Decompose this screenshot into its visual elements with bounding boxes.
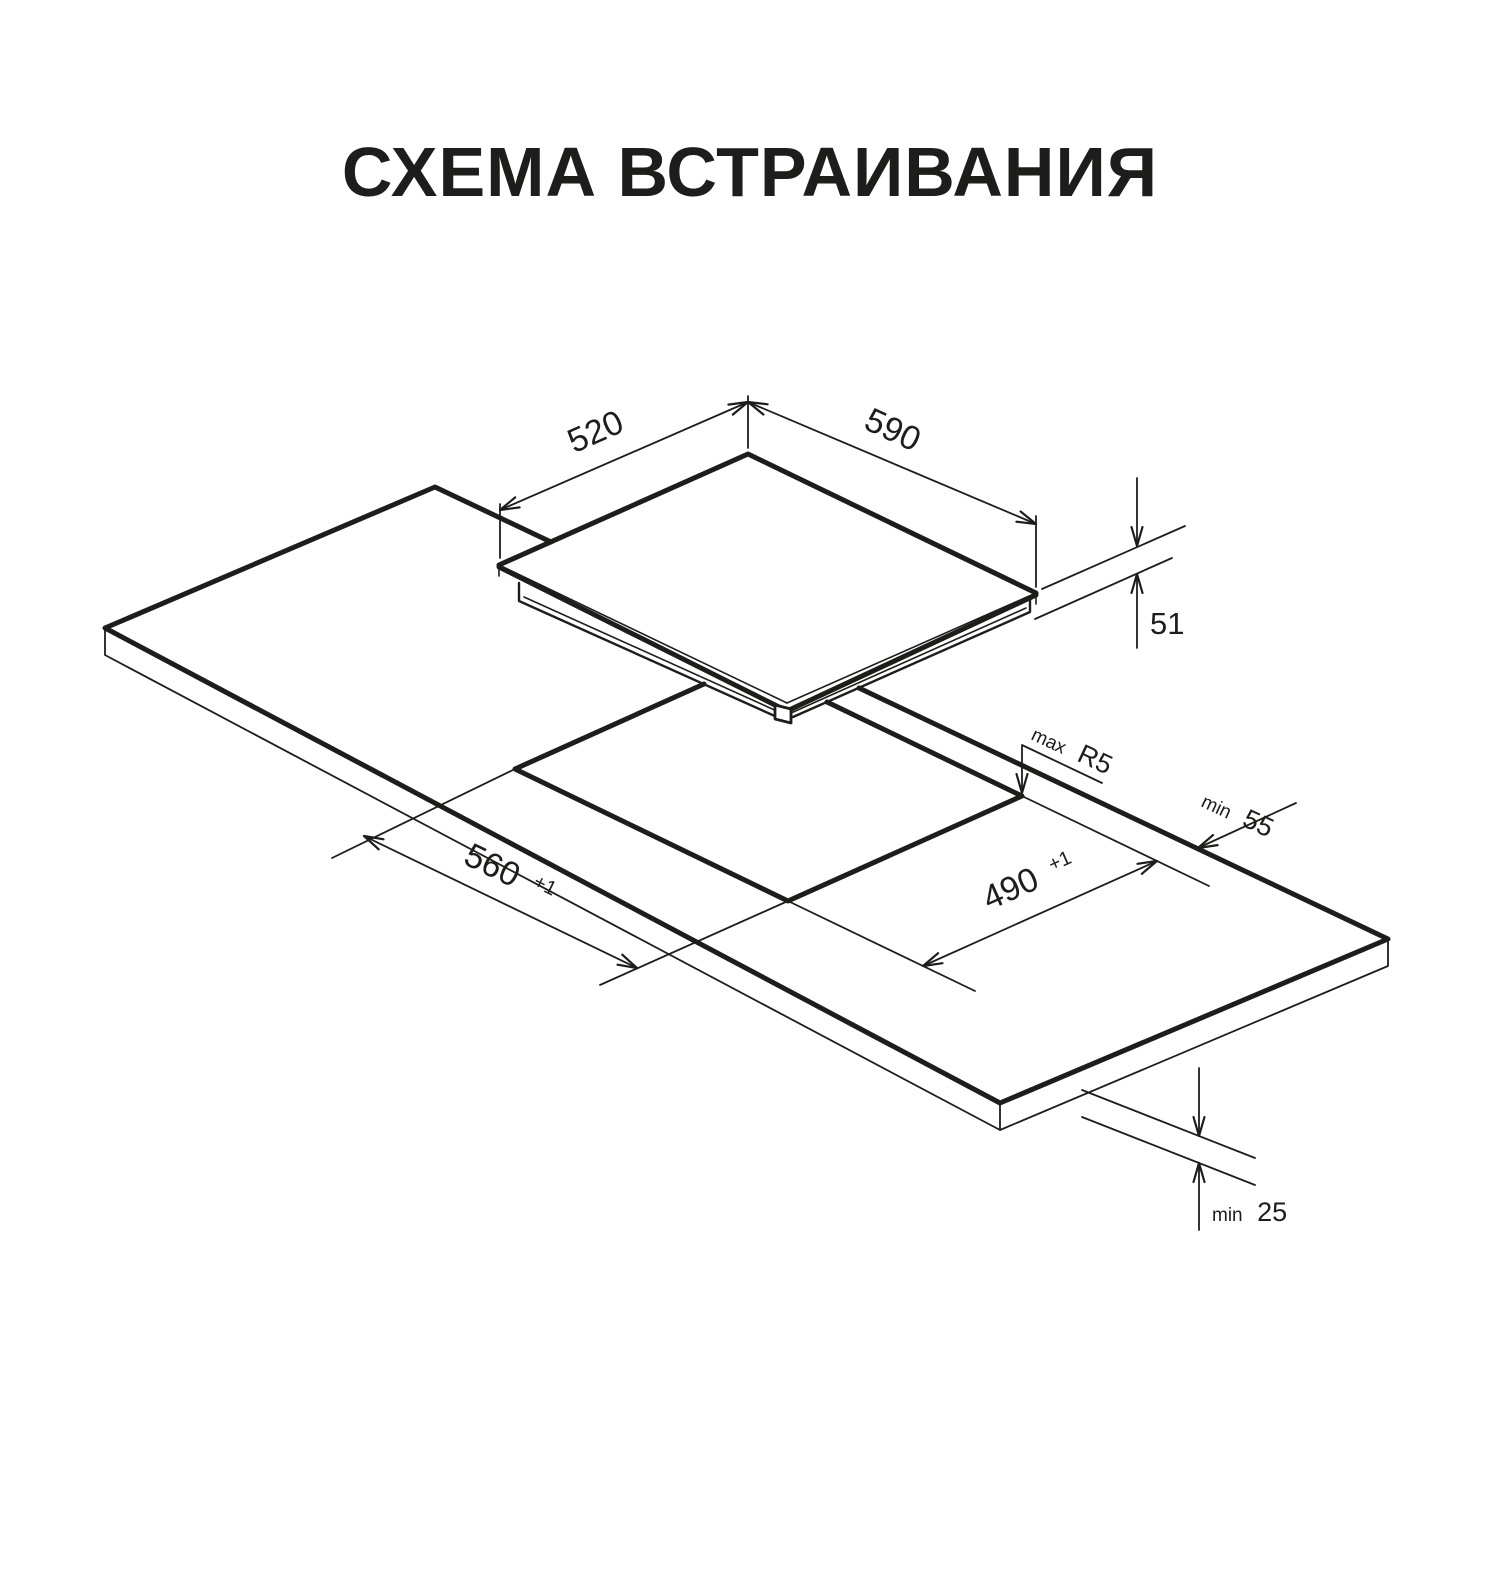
bottom-clearance-value: 25	[1257, 1197, 1287, 1227]
corner-radius-value: R5	[1073, 739, 1117, 781]
corner-radius-label: max R5	[1027, 717, 1117, 780]
diagram-linework	[105, 396, 1388, 1230]
worktop-panel	[105, 487, 1388, 1130]
bottom-clearance-prefix: min	[1212, 1205, 1243, 1226]
bottom-clearance-label: min 25	[1212, 1197, 1287, 1227]
worktop-cutout	[515, 684, 1022, 901]
cutout-depth-value: 490	[977, 860, 1044, 918]
hob-depth-label: 520	[562, 403, 629, 461]
installation-diagram: 520 590 51 560 +1 490 +1 max R5 min 55 m…	[0, 0, 1500, 1586]
cutout-width-label: 560 +1	[458, 836, 561, 912]
cutout-depth-label: 490 +1	[977, 844, 1080, 918]
rear-clearance-label: min 55	[1197, 784, 1278, 843]
rear-clearance-prefix: min	[1198, 791, 1235, 823]
dimension-labels: 520 590 51 560 +1 490 +1 max R5 min 55 m…	[458, 401, 1287, 1227]
cutout-depth-tolerance: +1	[1045, 847, 1075, 876]
hob-width-label: 590	[859, 401, 926, 459]
rear-clearance-value: 55	[1238, 803, 1278, 843]
hob-glass-panel	[499, 454, 1036, 711]
cutout-width-tolerance: +1	[530, 871, 560, 901]
hob-height-label: 51	[1150, 606, 1184, 641]
corner-radius-prefix: max	[1028, 724, 1070, 758]
